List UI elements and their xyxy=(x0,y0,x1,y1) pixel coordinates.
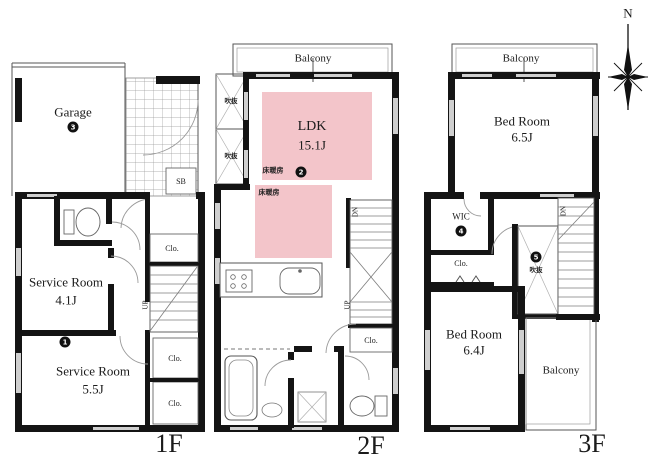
bedroom-a-name: Bed Room xyxy=(494,115,550,128)
wic-note-badge: 4 xyxy=(456,226,467,237)
floorplan-linework xyxy=(0,0,657,469)
service-room-b-note-badge: 1 xyxy=(60,337,71,348)
stairs-up-label-1f: UP xyxy=(143,301,150,310)
balcony-side-label-3f: Balcony xyxy=(543,366,580,377)
closet-label-1f-b: Clo. xyxy=(168,355,182,363)
void-label-2f-b: 吹抜 xyxy=(225,153,238,160)
ldk-room-name: LDK xyxy=(298,120,327,134)
stairs-up-label-2f: UP xyxy=(345,301,352,310)
shoe-box-label: SB xyxy=(176,178,186,186)
floor-heating-label-a: 床暖房 xyxy=(263,168,284,175)
ldk-room-size: 15.1J xyxy=(298,139,326,152)
service-room-a-name: Service Room xyxy=(29,276,103,289)
void-label-3f: 吹抜 xyxy=(530,267,543,274)
closet-label-1f-a: Clo. xyxy=(165,245,179,253)
bedroom-a-size: 6.5J xyxy=(511,131,532,144)
floor-label-1f: 1F xyxy=(155,431,182,457)
floor-heating-label-b: 床暖房 xyxy=(259,190,280,197)
stairs-down-label-3f: DN xyxy=(561,206,568,216)
ldk-note-badge: 2 xyxy=(296,167,307,178)
wic-label: WIC xyxy=(452,213,470,222)
service-room-b-size: 5.5J xyxy=(82,383,103,396)
garage-note-badge: 3 xyxy=(68,122,79,133)
void-note-badge: 5 xyxy=(531,252,542,263)
closet-label-1f-c: Clo. xyxy=(168,400,182,408)
closet-label-2f: Clo. xyxy=(364,337,378,345)
compass-north-label: N xyxy=(623,7,632,20)
service-room-a-size: 4.1J xyxy=(55,294,76,307)
compass-north-icon xyxy=(608,24,648,110)
floor-label-3f: 3F xyxy=(578,431,605,457)
closet-label-3f: Clo. xyxy=(454,260,468,268)
balcony-top-label-3f: Balcony xyxy=(503,54,540,65)
bedroom-b-size: 6.4J xyxy=(463,344,484,357)
floor-label-2f: 2F xyxy=(357,433,384,459)
void-label-2f-a: 吹抜 xyxy=(225,98,238,105)
service-room-b-name: Service Room xyxy=(56,365,130,378)
stairs-down-label-2f: DN xyxy=(353,207,360,217)
balcony-label-2f: Balcony xyxy=(295,54,332,65)
floor-2-structure xyxy=(214,44,399,432)
bedroom-b-name: Bed Room xyxy=(446,328,502,341)
floorplan-page: Garage 3 SB Clo. Service Room 4.1J 1 Ser… xyxy=(0,0,657,469)
garage-room-label: Garage xyxy=(54,106,92,119)
